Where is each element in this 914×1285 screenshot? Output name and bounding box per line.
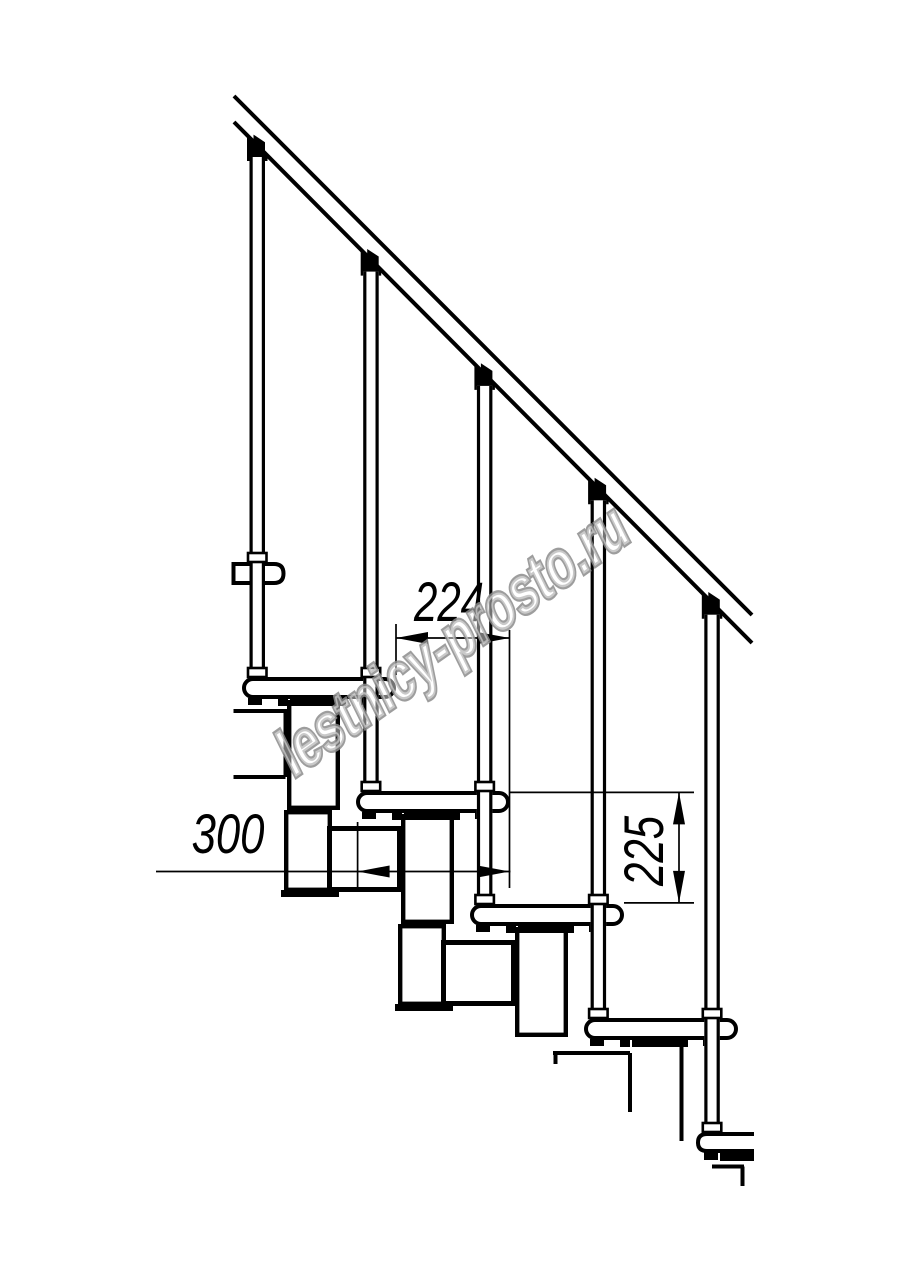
svg-text:300: 300 — [192, 803, 265, 865]
svg-text:225: 225 — [613, 816, 675, 887]
